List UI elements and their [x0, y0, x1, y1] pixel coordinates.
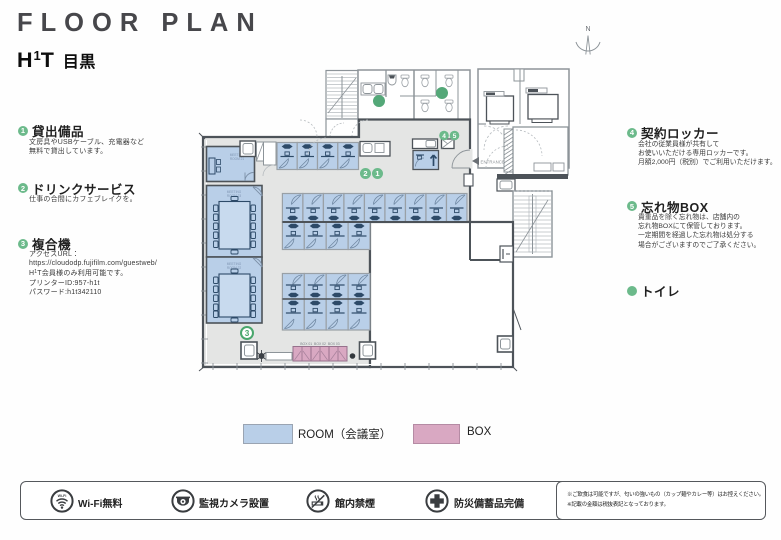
- svg-text:ROOM 21: ROOM 21: [230, 157, 245, 161]
- svg-text:ROOM 23: ROOM 23: [227, 194, 242, 198]
- svg-text:4: 4: [442, 133, 446, 140]
- svg-text:3: 3: [245, 329, 250, 338]
- svg-text:ENTRANCE: ENTRANCE: [481, 159, 505, 164]
- svg-text:5: 5: [453, 133, 457, 140]
- svg-text:BOX 01 BOX 02 BOX 03: BOX 01 BOX 02 BOX 03: [300, 342, 340, 346]
- svg-text:N: N: [585, 26, 590, 33]
- svg-text:Wi-Fi: Wi-Fi: [58, 494, 67, 498]
- svg-text:2: 2: [363, 169, 367, 178]
- svg-text:1: 1: [375, 169, 379, 178]
